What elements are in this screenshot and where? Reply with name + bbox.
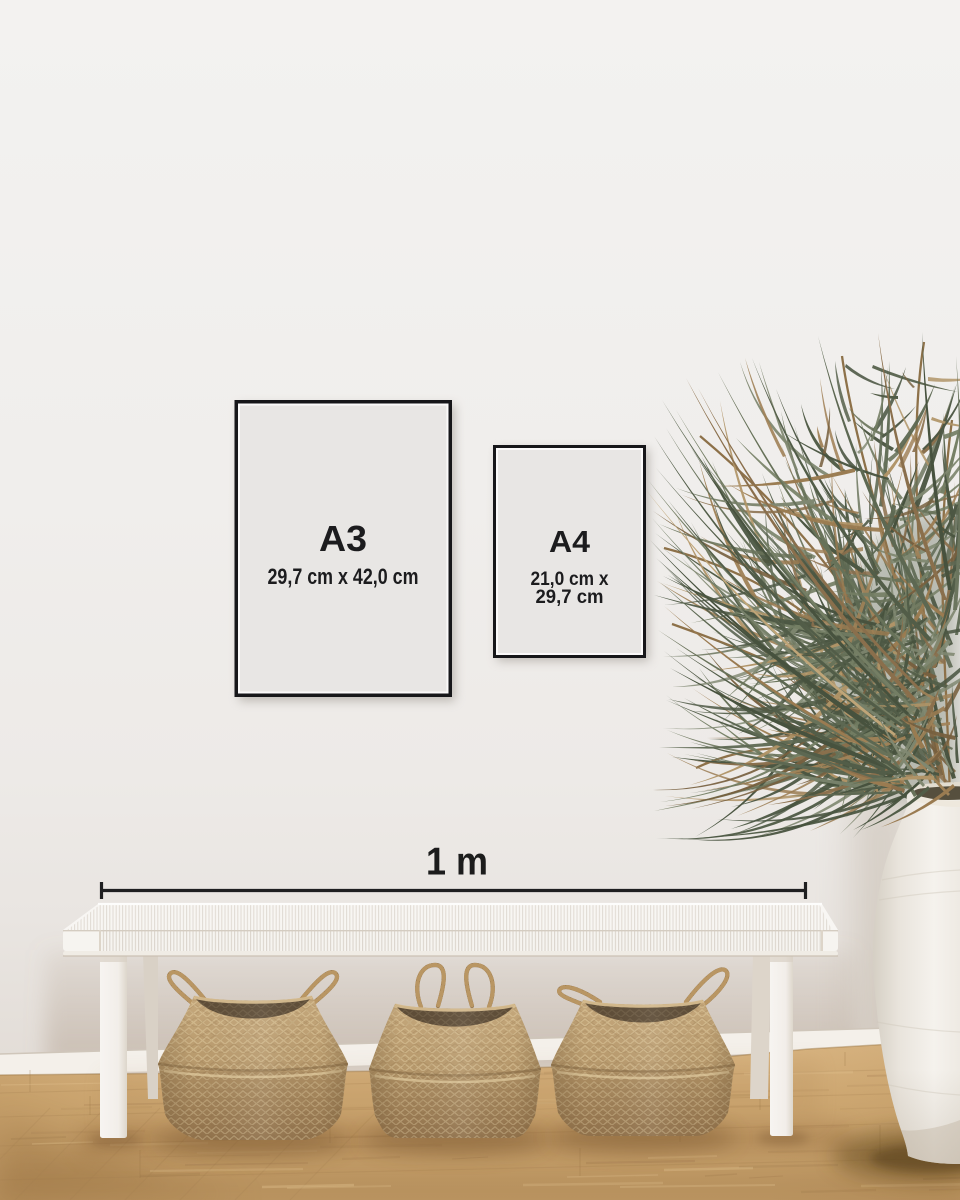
- svg-text:29,7 cm x 42,0 cm: 29,7 cm x 42,0 cm: [268, 564, 419, 589]
- svg-text:A3: A3: [319, 518, 367, 559]
- svg-text:A4: A4: [549, 524, 591, 559]
- svg-text:29,7 cm: 29,7 cm: [536, 587, 604, 608]
- svg-text:1 m: 1 m: [426, 841, 488, 884]
